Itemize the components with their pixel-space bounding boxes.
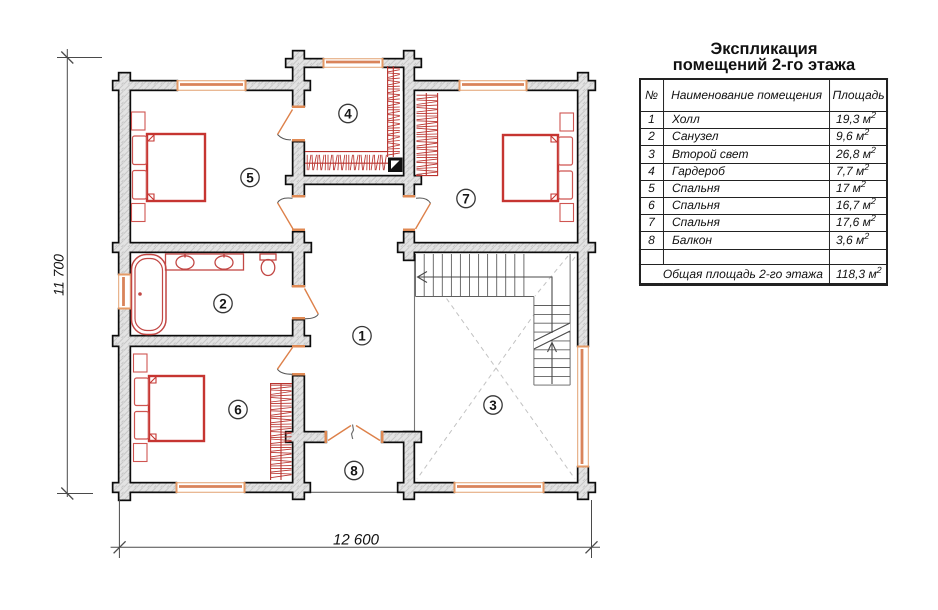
svg-text:12 600: 12 600 bbox=[333, 531, 380, 548]
svg-text:5: 5 bbox=[246, 170, 254, 185]
svg-text:3: 3 bbox=[489, 398, 497, 413]
svg-text:4: 4 bbox=[344, 106, 352, 121]
svg-text:7: 7 bbox=[462, 191, 470, 206]
svg-text:2: 2 bbox=[219, 296, 227, 311]
svg-text:8: 8 bbox=[350, 463, 358, 478]
svg-text:6: 6 bbox=[234, 402, 242, 417]
svg-text:1: 1 bbox=[358, 329, 366, 344]
svg-text:11 700: 11 700 bbox=[50, 254, 66, 296]
